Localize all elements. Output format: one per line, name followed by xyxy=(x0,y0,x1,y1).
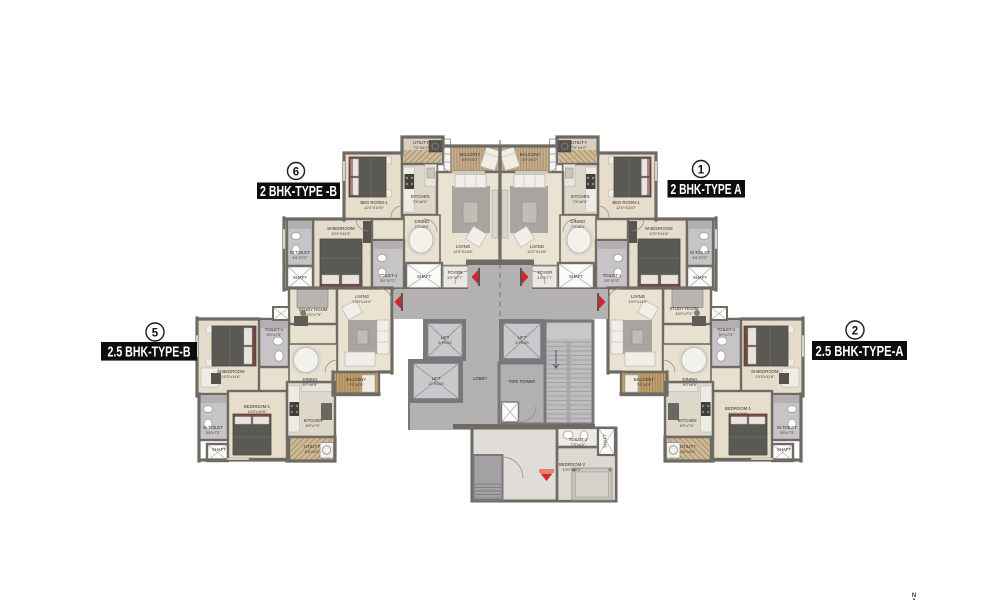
svg-text:7'6"x4'0": 7'6"x4'0" xyxy=(349,382,364,387)
svg-text:13 PASS: 13 PASS xyxy=(428,381,444,386)
svg-text:10'0"x7'9": 10'0"x7'9" xyxy=(304,312,322,317)
svg-text:1: 1 xyxy=(698,164,705,176)
svg-text:10'3"x11'6": 10'3"x11'6" xyxy=(756,374,776,379)
svg-text:10'0"X11'6": 10'0"X11'6" xyxy=(649,231,669,236)
svg-text:12'0"X14'6": 12'0"X14'6" xyxy=(527,249,547,254)
svg-text:4'0"X7'7": 4'0"X7'7" xyxy=(447,275,463,280)
svg-text:10'0"x10'6": 10'0"x10'6" xyxy=(247,409,267,414)
svg-text:7'0"x8'0": 7'0"x8'0" xyxy=(571,224,586,229)
svg-text:8'9"x7'0": 8'9"x7'0" xyxy=(306,423,321,428)
svg-text:7'6"x8'0": 7'6"x8'0" xyxy=(573,199,588,204)
svg-text:5'0"x7'3": 5'0"x7'3" xyxy=(719,332,734,337)
svg-text:5'0"X7'2": 5'0"X7'2" xyxy=(604,278,620,283)
svg-text:6: 6 xyxy=(293,166,299,178)
svg-text:12'0"X14'6": 12'0"X14'6" xyxy=(453,249,473,254)
svg-text:4'6"X7'2": 4'6"X7'2" xyxy=(292,255,308,260)
svg-text:12'0"X10'0": 12'0"X10'0" xyxy=(364,205,384,210)
svg-text:5: 5 xyxy=(152,327,159,339)
svg-text:SHAFT: SHAFT xyxy=(693,275,707,280)
svg-text:7'6"x4'0": 7'6"x4'0" xyxy=(637,382,652,387)
svg-text:8'9"X4'0": 8'9"X4'0" xyxy=(462,157,478,162)
svg-text:5'0"x7'3": 5'0"x7'3" xyxy=(267,332,282,337)
svg-text:SHAFT: SHAFT xyxy=(569,274,583,279)
svg-text:10'3"x11'6": 10'3"x11'6" xyxy=(222,374,242,379)
svg-text:10'0"x14'0": 10'0"x14'0" xyxy=(628,299,648,304)
svg-text:SHAFT: SHAFT xyxy=(777,447,791,452)
svg-text:7'0"X4'0": 7'0"X4'0" xyxy=(413,145,429,150)
svg-text:10'0"x10'0": 10'0"x10'0" xyxy=(562,467,582,472)
svg-text:8 PASS: 8 PASS xyxy=(438,340,452,345)
svg-text:8'0"x8'6": 8'0"x8'6" xyxy=(303,382,318,387)
svg-text:2 BHK-TYPE A: 2 BHK-TYPE A xyxy=(671,182,742,198)
svg-text:7'0"X4'0": 7'0"X4'0" xyxy=(571,145,587,150)
svg-text:4'6"X7'2": 4'6"X7'2" xyxy=(692,255,708,260)
svg-text:8'0"x8'6": 8'0"x8'6" xyxy=(683,382,698,387)
svg-text:SHAFT: SHAFT xyxy=(417,274,431,279)
svg-text:8'9"X4'0": 8'9"X4'0" xyxy=(522,157,538,162)
svg-text:LOBBY: LOBBY xyxy=(473,376,487,381)
svg-text:5'6"x7'3": 5'6"x7'3" xyxy=(206,430,221,435)
svg-text:7'6"x8'0": 7'6"x8'0" xyxy=(413,199,428,204)
svg-text:12'0"X10'0": 12'0"X10'0" xyxy=(616,205,636,210)
svg-text:SHAFT: SHAFT xyxy=(212,447,226,452)
svg-text:5'6"x7'3": 5'6"x7'3" xyxy=(780,430,795,435)
svg-text:2 BHK-TYPE -B: 2 BHK-TYPE -B xyxy=(260,184,337,200)
svg-text:8'9"x7'0": 8'9"x7'0" xyxy=(680,423,695,428)
svg-text:10'0"x14'0": 10'0"x14'0" xyxy=(352,299,372,304)
svg-text:SHAFT: SHAFT xyxy=(293,275,307,280)
svg-text:7'0"x8'0": 7'0"x8'0" xyxy=(415,224,430,229)
svg-text:FIRE TOWER: FIRE TOWER xyxy=(509,379,536,384)
svg-text:8'6"x4'0": 8'6"x4'0" xyxy=(681,449,696,454)
svg-text:10'0"X11'6": 10'0"X11'6" xyxy=(331,231,351,236)
svg-text:8'6"x4'0": 8'6"x4'0" xyxy=(305,449,320,454)
svg-text:2.5 BHK-TYPE-A: 2.5 BHK-TYPE-A xyxy=(816,344,904,360)
svg-text:2: 2 xyxy=(852,325,858,337)
svg-text:N: N xyxy=(912,593,916,599)
svg-text:7'3"x4'0": 7'3"x4'0" xyxy=(571,442,586,447)
svg-text:8 PASS: 8 PASS xyxy=(515,340,529,345)
svg-text:10'0"x10'6": 10'0"x10'6" xyxy=(728,411,748,416)
svg-text:4'0"X7'7": 4'0"X7'7" xyxy=(537,275,553,280)
svg-text:5'0"X7'2": 5'0"X7'2" xyxy=(380,278,396,283)
svg-text:2.5 BHK-TYPE-B: 2.5 BHK-TYPE-B xyxy=(108,345,191,361)
svg-text:10'0"x7'9": 10'0"x7'9" xyxy=(675,311,693,316)
svg-text:SHAFT: SHAFT xyxy=(603,434,608,448)
